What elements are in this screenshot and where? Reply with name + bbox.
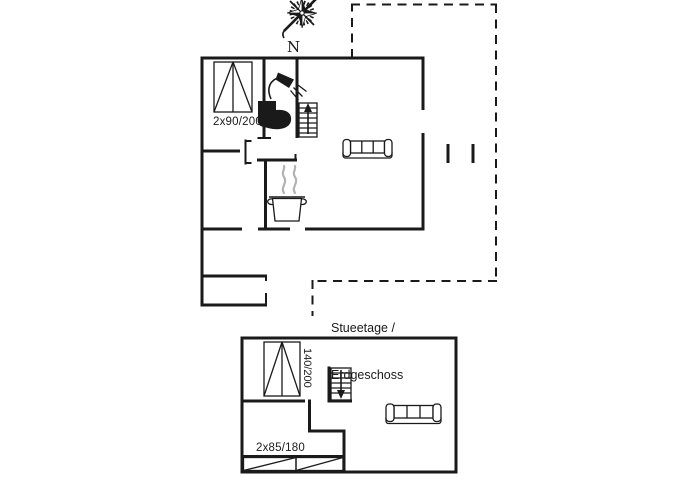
floor-plan-canvas — [0, 0, 700, 500]
upper-singles-size-label: 2x85/180 — [256, 442, 304, 454]
ground-floor-name-line2: Erdgeschoss — [331, 368, 403, 384]
double-bed-icon — [214, 62, 252, 112]
toilet-icon — [258, 101, 291, 129]
stairs-up-icon — [299, 103, 317, 137]
ground-floor-name: Stueetage / Erdgeschoss — [331, 290, 403, 414]
floorplan-page: N 2x90/200 Stueetage / Erdgeschoss 140/2… — [0, 0, 700, 500]
ground-bed-size-label: 2x90/200 — [213, 116, 255, 128]
steam-icon — [283, 166, 296, 193]
ground-floor-plan — [201, 4, 498, 316]
terrace-dashed-outline — [313, 4, 498, 316]
single-beds-icon — [244, 458, 344, 471]
terrace-step-marks — [448, 144, 473, 163]
upper-bed-size-label: 140/200 — [301, 348, 313, 388]
shower-icon — [269, 73, 307, 101]
ground-floor-name-line1: Stueetage / — [331, 321, 403, 337]
north-label: N — [287, 38, 300, 56]
double-bed-icon — [264, 342, 300, 396]
sofa-icon — [343, 140, 392, 159]
upper-floor-name: 1. sal / Obergeschoss — [311, 474, 392, 500]
compass-rose-icon — [283, 0, 320, 38]
ground-outer-walls — [201, 57, 425, 307]
cooking-pot-icon — [268, 197, 307, 221]
